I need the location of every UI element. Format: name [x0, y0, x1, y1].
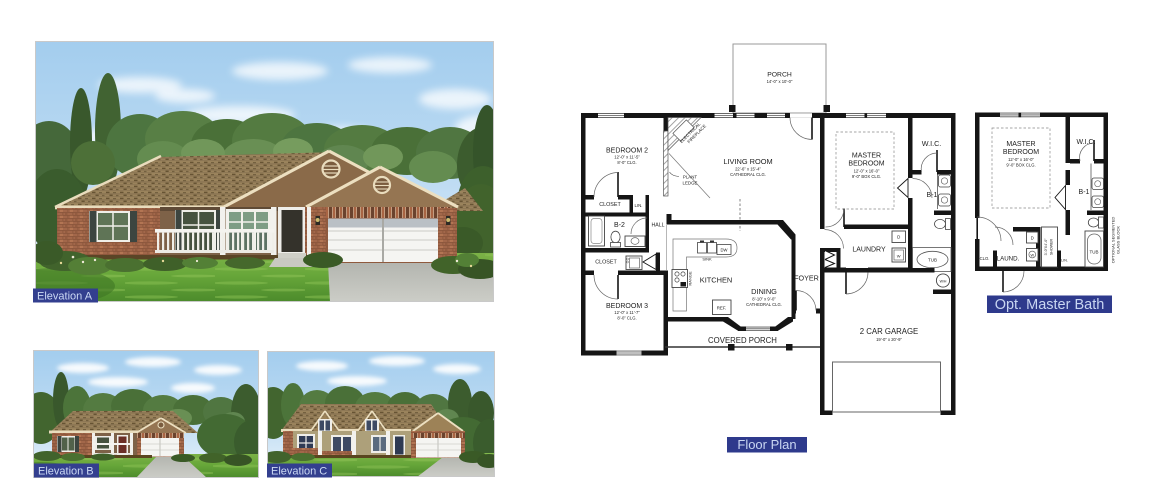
svg-text:9’-0” BOX CLG.: 9’-0” BOX CLG. — [852, 174, 881, 179]
svg-text:8’-10” x 9’-0”: 8’-10” x 9’-0” — [752, 297, 776, 302]
svg-text:3’-0”X4’-0”: 3’-0”X4’-0” — [1044, 238, 1048, 256]
svg-text:REF.: REF. — [717, 306, 727, 311]
svg-text:BEDROOM 3: BEDROOM 3 — [606, 303, 648, 310]
svg-text:MASTER: MASTER — [852, 153, 881, 160]
svg-text:CATHEDRAL CLG.: CATHEDRAL CLG. — [730, 172, 766, 177]
svg-text:W: W — [1031, 254, 1035, 258]
svg-text:8’-0” CLG.: 8’-0” CLG. — [617, 160, 636, 165]
svg-text:LAUNDRY: LAUNDRY — [852, 247, 886, 254]
svg-text:PLANT: PLANT — [683, 175, 697, 180]
svg-text:BEDROOM 2: BEDROOM 2 — [606, 148, 648, 155]
svg-text:CLOSET: CLOSET — [595, 260, 617, 266]
svg-text:COVERED PORCH: COVERED PORCH — [708, 336, 777, 345]
svg-text:W: W — [897, 254, 901, 259]
svg-text:12’-0” x 16’-0”: 12’-0” x 16’-0” — [1008, 157, 1034, 162]
svg-text:B-2: B-2 — [614, 222, 625, 229]
svg-text:D: D — [897, 235, 900, 240]
svg-text:SHOWER: SHOWER — [1050, 239, 1054, 256]
svg-text:B-1: B-1 — [1079, 189, 1090, 196]
svg-text:CLOSET: CLOSET — [599, 202, 621, 208]
svg-text:LEDGE: LEDGE — [683, 181, 698, 186]
svg-text:LIN.: LIN. — [1061, 259, 1068, 263]
svg-text:MASTER: MASTER — [1006, 141, 1035, 148]
svg-text:KITCHEN: KITCHEN — [700, 276, 732, 285]
svg-text:Floor Plan: Floor Plan — [737, 437, 796, 452]
svg-text:CLO.: CLO. — [980, 256, 990, 261]
svg-text:12’-0” x 11’-7”: 12’-0” x 11’-7” — [614, 310, 640, 315]
svg-text:19’-0” x 20’-9”: 19’-0” x 20’-9” — [876, 337, 902, 342]
svg-text:BEDROOM: BEDROOM — [848, 161, 884, 168]
svg-text:D: D — [1031, 236, 1034, 241]
svg-text:PORCH: PORCH — [767, 72, 792, 79]
svg-text:DINING: DINING — [751, 287, 777, 296]
svg-text:14’-0” x 10’-0”: 14’-0” x 10’-0” — [767, 79, 793, 84]
svg-text:LIN.: LIN. — [634, 203, 642, 208]
svg-text:12’-0” x 11’-5”: 12’-0” x 11’-5” — [614, 155, 640, 160]
svg-text:Elevation C: Elevation C — [271, 466, 327, 478]
svg-text:Elevation B: Elevation B — [38, 466, 94, 478]
svg-text:LIVING ROOM: LIVING ROOM — [723, 157, 772, 166]
svg-text:2 CAR GARAGE: 2 CAR GARAGE — [860, 327, 919, 336]
svg-text:W.I.C.: W.I.C. — [922, 139, 942, 148]
svg-text:W/H: W/H — [940, 279, 947, 283]
svg-text:SINK: SINK — [702, 257, 712, 262]
svg-text:9’-0” BOX CLG.: 9’-0” BOX CLG. — [1006, 163, 1035, 168]
svg-text:Elevation A: Elevation A — [37, 291, 93, 303]
svg-text:HALL: HALL — [652, 223, 665, 229]
svg-text:RANGE: RANGE — [688, 271, 693, 286]
svg-text:Opt. Master Bath: Opt. Master Bath — [995, 297, 1105, 313]
svg-text:DW: DW — [721, 248, 728, 253]
svg-text:12’-0” x 16’-0”: 12’-0” x 16’-0” — [854, 169, 880, 174]
svg-text:TUB: TUB — [1090, 250, 1099, 255]
svg-text:FOYER: FOYER — [794, 274, 819, 283]
svg-text:GLASS BLOCK: GLASS BLOCK — [1116, 226, 1121, 254]
svg-text:LAUND.: LAUND. — [997, 256, 1020, 263]
svg-text:CATHEDRAL CLG.: CATHEDRAL CLG. — [746, 302, 782, 307]
svg-text:22’-6” x 15’-4”: 22’-6” x 15’-4” — [735, 167, 761, 172]
svg-text:B-1: B-1 — [927, 192, 938, 199]
svg-text:BEDROOM: BEDROOM — [1003, 149, 1039, 156]
svg-text:8’-0” CLG.: 8’-0” CLG. — [617, 316, 636, 321]
svg-text:TUB: TUB — [928, 258, 937, 263]
